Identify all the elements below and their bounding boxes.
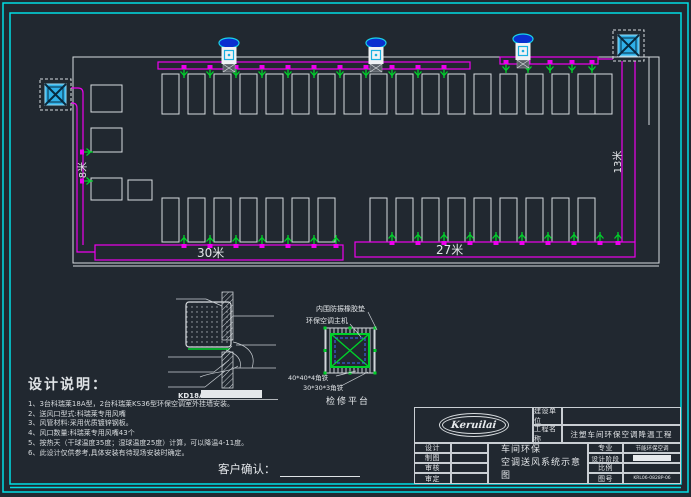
platform-pad-label: 内围防振橡胶垫 — [316, 304, 365, 313]
design-note: 4、风口数量:科瑞莱专用风嘴43个 — [28, 429, 278, 439]
dim-left-run: 8米 — [76, 162, 89, 178]
room — [91, 128, 122, 152]
cad-sheet: 30米 27米 8米 13米 KD18A — [0, 0, 691, 497]
customer-confirm: 客户确认： — [218, 461, 360, 477]
machine-row-top — [162, 74, 612, 114]
platform-angle30-label: 30*30*3角铁 — [303, 383, 344, 392]
sign-row-label: 设计 — [414, 443, 451, 453]
design-note: 1、3台科瑞莱18A型，2台科瑞莱KS36型环保空调室外挂墙安装。 — [28, 400, 278, 410]
project-name-label: 工程名称 — [533, 425, 562, 443]
info-row-label: 设计阶段 — [588, 453, 623, 463]
project-name-value: 注塑车间环保空调降温工程 — [562, 425, 681, 443]
wall-cooler-icon — [613, 30, 644, 61]
design-stage-bar — [633, 455, 671, 461]
customer-confirm-label: 客户确认： — [218, 461, 276, 477]
sign-row-label: 审核 — [414, 463, 451, 473]
sign-row-value — [451, 443, 488, 453]
detail-platform: 内围防振橡胶垫 环保空调主机 40*40*4角铁 30*30*3角铁 检修平台 — [288, 304, 377, 407]
company-logo: Keruilai — [439, 413, 509, 437]
evaporative-cooler-icon — [366, 38, 386, 72]
supply-vents-bottom — [181, 232, 622, 248]
design-notes: 设计说明： 1、3台科瑞莱18A型，2台科瑞莱KS36型环保空调室外挂墙安装。 … — [28, 374, 278, 458]
info-row-value: KRL06-0828P-06 — [623, 473, 681, 484]
dim-bottom-left: 30米 — [197, 246, 224, 260]
info-row-label: 比例 — [588, 463, 623, 473]
info-row-value — [623, 463, 681, 473]
room — [91, 178, 122, 200]
sign-row-value — [451, 453, 488, 463]
info-row-label: 专业 — [588, 443, 623, 453]
design-note: 5、按热天（干球温度35度；湿球温度25度）计算，可以降温4-11度。 — [28, 439, 278, 449]
signature-line — [280, 464, 360, 477]
drawing-title: 车间环保 空调送风系统示意图 — [488, 443, 588, 484]
building-outline — [73, 57, 659, 266]
design-note: 6、此设计仅供参考,具体安装有待现场安装时确定。 — [28, 449, 278, 459]
wall-cooler-icon — [40, 79, 71, 110]
construction-unit-label: 建设单位 — [533, 407, 562, 425]
room — [128, 180, 152, 200]
sign-row-value — [451, 473, 488, 484]
dimension-labels: 30米 27米 8米 13米 — [76, 151, 624, 260]
logo-text: Keruilai — [450, 420, 496, 431]
sign-row-value — [451, 463, 488, 473]
design-note: 2、送风口型式:科瑞莱专用风嘴 — [28, 410, 278, 420]
platform-title: 检修平台 — [326, 395, 370, 407]
info-row-label: 图号 — [588, 473, 623, 484]
logo-cell: Keruilai — [414, 407, 533, 443]
machine-row-bottom — [162, 198, 595, 242]
drawing-title-line2: 空调送风系统示意图 — [501, 457, 587, 483]
title-block: Keruilai 建设单位 工程名称 注塑车间环保空调降温工程 设计 制图 审核… — [414, 407, 681, 484]
dim-right-run: 13米 — [611, 151, 624, 174]
construction-unit-value — [562, 407, 681, 425]
design-note: 3、风管材料:采用优质镀锌钢板。 — [28, 419, 278, 429]
info-row-value: 节能环保空调 — [623, 443, 681, 453]
supply-duct-bottom — [95, 242, 635, 260]
design-notes-heading: 设计说明： — [28, 374, 278, 394]
dim-bottom-right: 27米 — [436, 243, 463, 257]
platform-unit-label: 环保空调主机 — [306, 316, 348, 325]
sign-row-label: 制图 — [414, 453, 451, 463]
room — [91, 85, 122, 112]
info-row-value — [623, 453, 681, 463]
sign-row-label: 审定 — [414, 473, 451, 484]
drawing-title-line1: 车间环保 — [501, 444, 541, 457]
platform-angle40-label: 40*40*4角铁 — [288, 373, 329, 382]
